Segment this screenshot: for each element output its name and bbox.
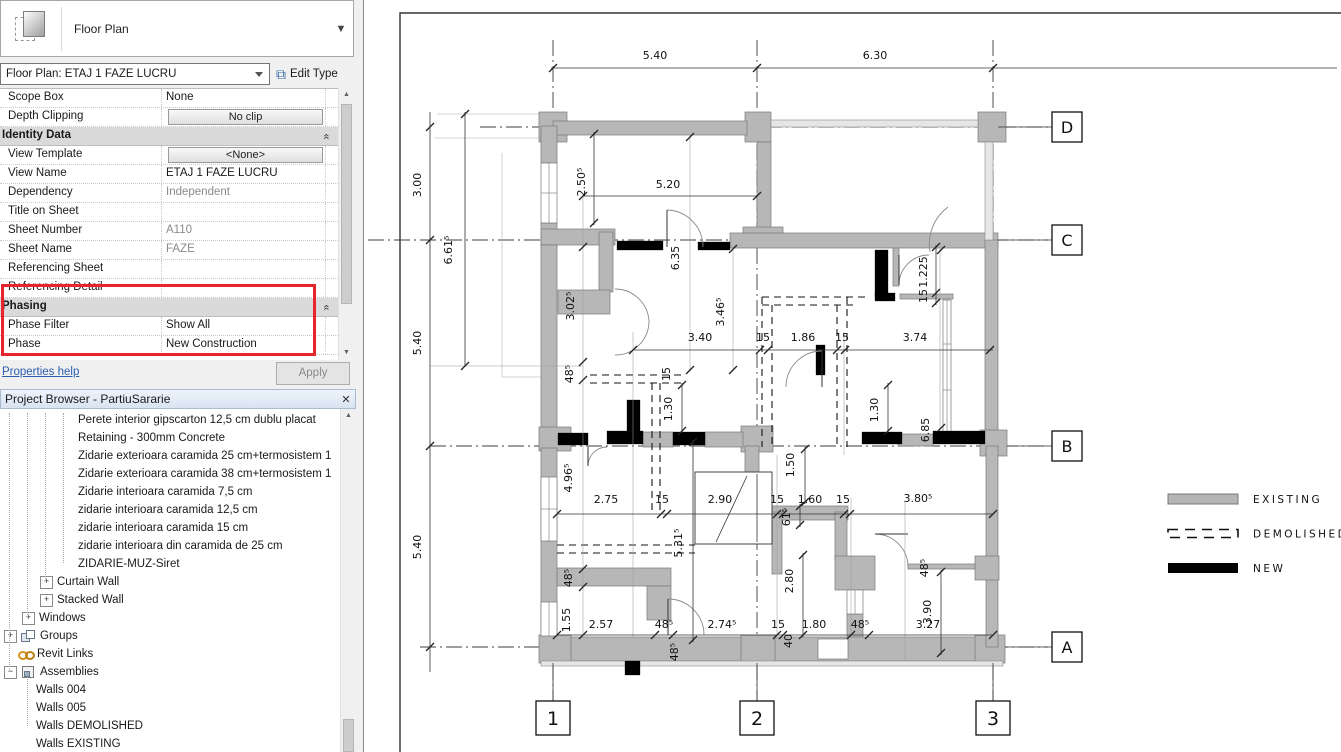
grid-bubble-label: B <box>1062 437 1073 456</box>
tree-item[interactable]: Retaining - 300mm Concrete <box>0 429 340 447</box>
scroll-up-icon[interactable]: ▲ <box>341 409 356 423</box>
property-value[interactable]: No clip <box>162 108 326 126</box>
dimension-label: 6.35 <box>669 246 682 271</box>
project-browser-header[interactable]: Project Browser - PartiuSararie ✕ <box>0 389 356 409</box>
property-row[interactable]: Sheet NumberA110 <box>0 222 338 241</box>
dimension-label: 15 <box>770 493 784 506</box>
dimension-label: 6.85 <box>919 418 932 443</box>
property-row[interactable]: Sheet NameFAZE <box>0 241 338 260</box>
tree-guide <box>63 413 64 563</box>
tree-item-label: Zidarie interioara caramida 7,5 cm <box>78 483 253 501</box>
dimension-label: 48⁵ <box>655 618 673 631</box>
dimension-label: 2.50⁵ <box>575 168 588 197</box>
dimension-label: 4.96⁵ <box>562 464 575 493</box>
dimension-label: 6.30 <box>863 49 888 62</box>
browser-scrollbar[interactable]: ▲ <box>340 409 356 752</box>
property-value[interactable]: FAZE <box>162 241 326 259</box>
tree-item[interactable]: +Stacked Wall <box>0 591 340 609</box>
property-row[interactable]: DependencyIndependent <box>0 184 338 203</box>
expand-icon[interactable]: + <box>40 576 53 589</box>
dimension-label: 15 <box>756 331 770 344</box>
property-row[interactable]: Phase FilterShow All <box>0 317 338 336</box>
tree-item[interactable]: +Windows <box>0 609 340 627</box>
property-label: Referencing Detail <box>0 279 162 297</box>
property-row[interactable]: View Template<None> <box>0 146 338 165</box>
furniture <box>695 472 772 544</box>
dimension-label: 1.80 <box>802 618 827 631</box>
dimension-label: 3.80⁵ <box>904 492 933 505</box>
legend-label: EXISTING <box>1253 494 1322 506</box>
tree-item-label: ZIDARIE-MUZ-Siret <box>78 555 180 573</box>
chevron-down-icon[interactable]: ▼ <box>329 23 353 35</box>
legend-swatch-demolished <box>1168 530 1238 538</box>
project-browser-tree: Perete interior gipscarton 12,5 cm dublu… <box>0 409 340 752</box>
panel-divider[interactable] <box>356 0 364 752</box>
tree-item-label: Revit Links <box>37 645 93 663</box>
dimension-label: 3.40 <box>688 331 713 344</box>
dimension-label: 1.60 <box>798 493 823 506</box>
property-row[interactable]: Referencing Sheet <box>0 260 338 279</box>
tree-item-label: Stacked Wall <box>57 591 124 609</box>
dimension-label: 61⁵ <box>780 508 793 526</box>
properties-palette: Floor Plan ▼ Floor Plan: ETAJ 1 FAZE LUC… <box>0 0 356 752</box>
scrollbar-thumb[interactable] <box>341 104 352 304</box>
legend: EXISTINGDEMOLISHEDNEW <box>1168 494 1341 575</box>
expand-icon[interactable]: + <box>40 594 53 607</box>
dimension-label: 2.57 <box>589 618 614 631</box>
revit-window: Floor Plan ▼ Floor Plan: ETAJ 1 FAZE LUC… <box>0 0 1341 752</box>
section-label: Identity Data <box>0 127 300 145</box>
property-label: Phase Filter <box>0 317 162 335</box>
instance-selector[interactable]: Floor Plan: ETAJ 1 FAZE LUCRU <box>0 63 270 85</box>
grid-bubble: 3 <box>976 701 1010 735</box>
tree-item[interactable]: Zidarie interioara caramida 7,5 cm <box>0 483 340 501</box>
property-grid: Scope BoxNoneDepth ClippingNo clipIdenti… <box>0 88 338 360</box>
property-value[interactable]: Show All <box>162 317 326 335</box>
scrollbar-thumb[interactable] <box>343 719 354 752</box>
assembly-icon <box>21 666 36 678</box>
grid-bubble: A <box>1052 632 1082 662</box>
tree-item-label: Walls DEMOLISHED <box>36 717 143 735</box>
walls-existing <box>539 112 1007 663</box>
tree-item-label: zidarie interioara caramida 15 cm <box>78 519 248 537</box>
tree-item-label: Zidarie exterioara caramida 25 cm+termos… <box>78 447 331 465</box>
tree-item-label: zidarie interioara caramida 12,5 cm <box>78 501 258 519</box>
value-button[interactable]: <None> <box>168 147 323 163</box>
dimension-label: 3.46⁵ <box>714 298 727 327</box>
dimension-label: 6.61⁵ <box>442 236 455 265</box>
tree-guide <box>27 672 28 726</box>
property-row[interactable]: Depth ClippingNo clip <box>0 108 338 127</box>
property-value[interactable]: ETAJ 1 FAZE LUCRU <box>162 165 326 183</box>
tree-guide <box>9 413 10 671</box>
type-selector-label: Floor Plan <box>74 22 329 36</box>
tree-item-label: zidarie interioara din caramida de 25 cm <box>78 537 283 555</box>
tree-item-label: Perete interior gipscarton 12,5 cm dublu… <box>78 411 316 429</box>
dimension-label: 15 <box>836 493 850 506</box>
dimension-label: 15 <box>917 289 930 303</box>
tree-item[interactable]: Walls DEMOLISHED <box>0 717 340 735</box>
dimension-label: 5.40 <box>643 49 668 62</box>
properties-scrollbar[interactable]: ▲ ▼ <box>338 88 354 360</box>
drawing-area[interactable]: 5.406.303.005.405.406.61⁵2.50⁵5.206.353.… <box>365 0 1341 752</box>
property-label: Depth Clipping <box>0 108 162 126</box>
dimension-label: 3.74 <box>903 331 928 344</box>
tree-item-label: Walls 005 <box>36 699 86 717</box>
dimension-label: 48⁵ <box>851 618 869 631</box>
property-value[interactable] <box>162 260 326 278</box>
dimension-label: 1.30 <box>868 398 881 423</box>
tree-item-label: Curtain Wall <box>57 573 119 591</box>
tree-item[interactable]: Perete interior gipscarton 12,5 cm dublu… <box>0 411 340 429</box>
tree-item[interactable]: zidarie interioara caramida 12,5 cm <box>0 501 340 519</box>
property-label: View Name <box>0 165 162 183</box>
tree-item[interactable]: zidarie interioara din caramida de 25 cm <box>0 537 340 555</box>
dimension-label: 15 <box>655 493 669 506</box>
tree-item[interactable]: Zidarie exterioara caramida 38 cm+termos… <box>0 465 340 483</box>
grid-bubble-label: 2 <box>751 708 763 730</box>
dimension-label: 3.02⁵ <box>564 292 577 321</box>
legend-swatch-existing <box>1168 494 1238 504</box>
dimension-label: 3.00 <box>411 173 424 198</box>
dimension-label: 2.80 <box>783 569 796 594</box>
tree-item[interactable]: ZIDARIE-MUZ-Siret <box>0 555 340 573</box>
dimension-label: 40 <box>782 634 795 648</box>
scroll-down-icon[interactable]: ▼ <box>339 346 354 360</box>
dimension-label: 2.90 <box>708 493 733 506</box>
legend-item: NEW <box>1168 563 1285 575</box>
tree-item[interactable]: Revit Links <box>0 645 340 663</box>
grid-bubble-label: 1 <box>547 708 559 730</box>
properties-help-link[interactable]: Properties help <box>2 366 79 378</box>
scroll-up-icon[interactable]: ▲ <box>339 88 354 102</box>
dimension-label: 1.86 <box>791 331 816 344</box>
dimension-label: 2.75 <box>594 493 619 506</box>
expand-icon[interactable]: + <box>22 612 35 625</box>
tree-item[interactable]: Zidarie exterioara caramida 25 cm+termos… <box>0 447 340 465</box>
legend-item: DEMOLISHED <box>1168 529 1341 541</box>
dimension-label: 15 <box>835 331 849 344</box>
property-label: Phase <box>0 336 162 354</box>
tree-item[interactable]: Walls 004 <box>0 681 340 699</box>
dimension-label: 1.225 <box>917 256 930 288</box>
dimension-label: 15 <box>660 367 673 381</box>
property-label: Sheet Number <box>0 222 162 240</box>
dimension-label: 1.55 <box>560 608 573 633</box>
tree-item-label: Walls EXISTING <box>36 735 121 752</box>
grid-bubble-label: C <box>1061 231 1072 250</box>
tree-item-label: Retaining - 300mm Concrete <box>78 429 225 447</box>
dimension-label: 48⁵ <box>562 569 575 587</box>
grid-bubble: B <box>1052 431 1082 461</box>
property-label: Scope Box <box>0 89 162 107</box>
dimension-label: 48⁵ <box>563 365 576 383</box>
type-selector[interactable]: Floor Plan ▼ <box>0 0 354 57</box>
tree-item-label: Assemblies <box>40 663 99 681</box>
legend-label: NEW <box>1253 563 1285 575</box>
legend-swatch-new <box>1168 563 1238 573</box>
property-value[interactable]: None <box>162 89 326 107</box>
grid-bubble: 1 <box>536 701 570 735</box>
property-row[interactable]: PhaseNew Construction <box>0 336 338 355</box>
section-label: Phasing <box>0 298 300 316</box>
tree-guide <box>45 413 46 581</box>
grid-bubble-label: A <box>1062 638 1073 657</box>
property-row[interactable]: Scope BoxNone <box>0 89 338 108</box>
dimension-label: 1.50 <box>784 453 797 478</box>
dimension-label: 15 <box>771 618 785 631</box>
property-label: View Template <box>0 146 162 164</box>
expand-icon[interactable]: + <box>4 630 17 643</box>
property-value[interactable]: New Construction <box>162 336 326 354</box>
dimension-label: 1.30 <box>662 397 675 422</box>
property-label: Title on Sheet <box>0 203 162 221</box>
groups-icon <box>21 630 36 642</box>
edit-type-button[interactable]: ⧉ Edit Type <box>276 68 338 80</box>
property-row[interactable]: Referencing Detail <box>0 279 338 298</box>
dimension-label: 3.90 <box>921 600 934 625</box>
dimension-label: 48⁵ <box>918 559 931 577</box>
legend-label: DEMOLISHED <box>1253 529 1341 541</box>
value-button[interactable]: No clip <box>168 109 323 125</box>
tree-item-label: Zidarie exterioara caramida 38 cm+termos… <box>78 465 331 483</box>
tree-item-label: Windows <box>39 609 86 627</box>
apply-button[interactable]: Apply <box>276 362 350 385</box>
legend-item: EXISTING <box>1168 494 1322 506</box>
project-browser-title: Project Browser - PartiuSararie <box>5 392 337 406</box>
floor-plan-type-icon <box>9 7 62 51</box>
collapse-icon[interactable]: − <box>4 666 17 679</box>
property-row[interactable]: View NameETAJ 1 FAZE LUCRU <box>0 165 338 184</box>
link-icon <box>18 648 33 660</box>
property-value[interactable] <box>162 203 326 221</box>
grid-bubble: 2 <box>740 701 774 735</box>
dimension-label: 48⁵ <box>668 643 681 661</box>
property-section-header[interactable]: Phasing» <box>0 298 338 317</box>
property-label: Dependency <box>0 184 162 202</box>
tree-item[interactable]: −Assemblies <box>0 663 340 681</box>
dimension-label: 5.31⁵ <box>672 529 685 558</box>
dimension-label: 5.20 <box>656 178 681 191</box>
grid-bubble-label: D <box>1061 118 1073 137</box>
tree-item[interactable]: +Curtain Wall <box>0 573 340 591</box>
floor-plan-view[interactable]: 5.406.303.005.405.406.61⁵2.50⁵5.206.353.… <box>365 0 1341 752</box>
property-value[interactable]: Independent <box>162 184 326 202</box>
tree-item[interactable]: +Groups <box>0 627 340 645</box>
dimension-label: 5.40 <box>411 535 424 560</box>
property-section-header[interactable]: Identity Data» <box>0 127 338 146</box>
chevron-down-icon[interactable] <box>255 72 263 77</box>
property-value[interactable] <box>162 279 326 297</box>
tree-item[interactable]: Walls EXISTING <box>0 735 340 752</box>
close-icon[interactable]: ✕ <box>337 393 355 406</box>
grid-bubble: D <box>1052 112 1082 142</box>
collapse-chevron-icon[interactable]: » <box>318 304 335 310</box>
grid-bubble: C <box>1052 225 1082 255</box>
tree-item[interactable]: Walls 005 <box>0 699 340 717</box>
property-row[interactable]: Title on Sheet <box>0 203 338 222</box>
tree-item-label: Walls 004 <box>36 681 86 699</box>
tree-guide <box>27 413 28 617</box>
property-label: Sheet Name <box>0 241 162 259</box>
edit-type-icon: ⧉ <box>276 68 286 80</box>
collapse-chevron-icon[interactable]: » <box>318 133 335 139</box>
grid-bubble-label: 3 <box>987 708 999 730</box>
tree-item[interactable]: zidarie interioara caramida 15 cm <box>0 519 340 537</box>
dimension-label: 5.40 <box>411 331 424 356</box>
property-value[interactable]: <None> <box>162 146 326 164</box>
property-label: Referencing Sheet <box>0 260 162 278</box>
dimension-label: 2.74⁵ <box>708 618 737 631</box>
property-value[interactable]: A110 <box>162 222 326 240</box>
tree-item-label: Groups <box>40 627 78 645</box>
